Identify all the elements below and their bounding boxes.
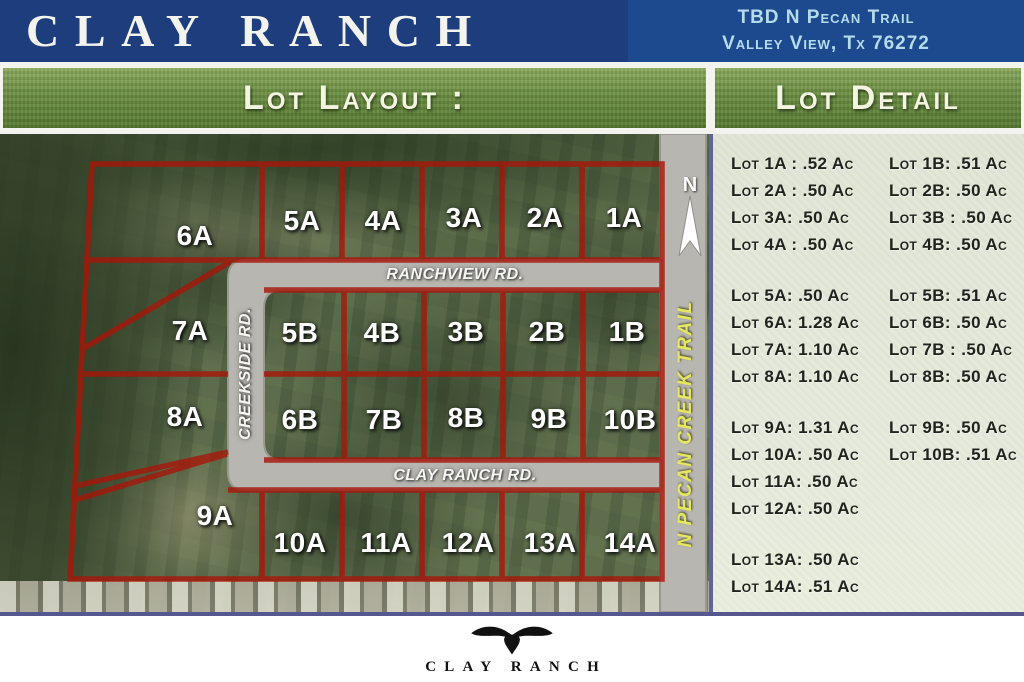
lot-4a-label: 4A: [365, 205, 402, 237]
address-block: TBD N Pecan Trail Valley View, Tx 76272: [628, 0, 1024, 62]
lot-14a-label: 14A: [604, 527, 657, 559]
lot-acreage: Lot 3A: .50 Ac: [731, 208, 889, 228]
lot-acreage: Lot 8A: 1.10 Ac: [731, 367, 889, 387]
detail-row: Lot 7A: 1.10 Ac Lot 7B : .50 Ac: [731, 336, 1024, 363]
lot-acreage: Lot 4A : .50 Ac: [731, 235, 889, 255]
lot-2a-label: 2A: [527, 202, 564, 234]
detail-row: Lot 4A : .50 Ac Lot 4B: .50 Ac: [731, 231, 1024, 258]
lot-acreage: Lot 5B: .51 Ac: [889, 286, 1019, 306]
lot-3a-label: 3A: [446, 202, 483, 234]
detail-row: Lot 10A: .50 Ac Lot 10B: .51 Ac: [731, 441, 1024, 468]
detail-group-1: Lot 1A : .52 Ac Lot 1B: .51 Ac Lot 2A : …: [731, 150, 1024, 258]
lot-5a-label: 5A: [284, 205, 321, 237]
lot-acreage: Lot 8B: .50 Ac: [889, 367, 1019, 387]
detail-row: Lot 9A: 1.31 Ac Lot 9B: .50 Ac: [731, 414, 1024, 441]
footer-logo-text: CLAY RANCH: [417, 659, 607, 676]
lot-detail-panel: Lot 1A : .52 Ac Lot 1B: .51 Ac Lot 2A : …: [709, 134, 1024, 612]
lot-acreage: Lot 10B: .51 Ac: [889, 445, 1019, 465]
lot-acreage: Lot 6A: 1.28 Ac: [731, 313, 889, 333]
lot-10a-label: 10A: [274, 527, 327, 559]
lot-acreage: Lot 3B : .50 Ac: [889, 208, 1019, 228]
footer: CLAY RANCH: [0, 616, 1024, 682]
lot-acreage: Lot 1A : .52 Ac: [731, 154, 889, 174]
detail-row: Lot 14A: .51 Ac: [731, 573, 1024, 600]
lot-acreage: Lot 4B: .50 Ac: [889, 235, 1019, 255]
address-line-2: Valley View, Tx 76272: [722, 31, 930, 57]
header-bar: CLAY RANCH TBD N Pecan Trail Valley View…: [0, 0, 1024, 62]
lot-11a-label: 11A: [360, 527, 411, 559]
lot-12a-label: 12A: [442, 527, 495, 559]
lot-acreage: Lot 14A: .51 Ac: [731, 577, 889, 597]
lot-5b-label: 5B: [282, 317, 319, 349]
pecan-creek-trail-label: N PECAN CREEK TRAIL: [675, 300, 697, 547]
north-indicator: N: [668, 174, 709, 197]
lot-acreage: Lot 9A: 1.31 Ac: [731, 418, 889, 438]
detail-row: Lot 11A: .50 Ac: [731, 468, 1024, 495]
lot-6b-label: 6B: [282, 404, 319, 436]
lot-7a-label: 7A: [172, 315, 209, 347]
lot-10b-label: 10B: [604, 404, 657, 436]
lot-8b-label: 8B: [448, 402, 485, 434]
detail-row: Lot 6A: 1.28 Ac Lot 6B: .50 Ac: [731, 309, 1024, 336]
north-label: N: [683, 174, 697, 196]
lot-acreage: Lot 6B: .50 Ac: [889, 313, 1019, 333]
lot-acreage: Lot 9B: .50 Ac: [889, 418, 1019, 438]
creekside-rd-label: CREEKSIDE RD.: [237, 308, 255, 440]
flyer-page: CLAY RANCH TBD N Pecan Trail Valley View…: [0, 0, 1024, 682]
lot-1a-label: 1A: [606, 202, 643, 234]
lot-layout-heading: Lot Layout :: [243, 79, 466, 118]
lot-4b-label: 4B: [364, 317, 401, 349]
lot-6a-label: 6A: [177, 220, 214, 252]
clay-ranch-rd-label: CLAY RANCH RD.: [393, 467, 536, 485]
detail-row: Lot 8A: 1.10 Ac Lot 8B: .50 Ac: [731, 363, 1024, 390]
detail-row: Lot 13A: .50 Ac: [731, 546, 1024, 573]
ranch-title: CLAY RANCH: [26, 2, 626, 60]
lot-detail-banner: Lot Detail: [712, 65, 1024, 131]
detail-group-2: Lot 5A: .50 Ac Lot 5B: .51 Ac Lot 6A: 1.…: [731, 282, 1024, 390]
detail-row: Lot 2A : .50 Ac Lot 2B: .50 Ac: [731, 177, 1024, 204]
detail-row: Lot 12A: .50 Ac: [731, 495, 1024, 522]
detail-row: Lot 1A : .52 Ac Lot 1B: .51 Ac: [731, 150, 1024, 177]
lot-layout-banner: Lot Layout :: [0, 65, 709, 131]
lot-acreage: Lot 7A: 1.10 Ac: [731, 340, 889, 360]
lot-1b-label: 1B: [609, 316, 646, 348]
detail-row: Lot 5A: .50 Ac Lot 5B: .51 Ac: [731, 282, 1024, 309]
lot-acreage: Lot 13A: .50 Ac: [731, 550, 889, 570]
detail-group-4: Lot 13A: .50 Ac Lot 14A: .51 Ac: [731, 546, 1024, 600]
lot-acreage: Lot 11A: .50 Ac: [731, 472, 889, 492]
lot-9a-label: 9A: [197, 500, 234, 532]
lot-2b-label: 2B: [529, 316, 566, 348]
lot-detail-heading: Lot Detail: [775, 79, 961, 118]
lot-acreage: Lot 1B: .51 Ac: [889, 154, 1019, 174]
lot-acreage: Lot 10A: .50 Ac: [731, 445, 889, 465]
lot-7b-label: 7B: [366, 404, 403, 436]
content-row: N 6A 5A 4A 3A 2A 1A 7A 5B 4B 3B 2B 1B 8A…: [0, 134, 1024, 612]
section-banners: Lot Layout : Lot Detail: [0, 62, 1024, 134]
longhorn-icon: [437, 623, 587, 657]
lot-8a-label: 8A: [167, 401, 204, 433]
address-line-1: TBD N Pecan Trail: [737, 5, 914, 31]
lot-3b-label: 3B: [448, 316, 485, 348]
lot-acreage: Lot 7B : .50 Ac: [889, 340, 1019, 360]
detail-row: Lot 3A: .50 Ac Lot 3B : .50 Ac: [731, 204, 1024, 231]
lot-acreage: Lot 5A: .50 Ac: [731, 286, 889, 306]
lot-layout-map: N 6A 5A 4A 3A 2A 1A 7A 5B 4B 3B 2B 1B 8A…: [0, 134, 709, 612]
lot-9b-label: 9B: [531, 403, 568, 435]
lot-acreage: Lot 12A: .50 Ac: [731, 499, 889, 519]
detail-group-3: Lot 9A: 1.31 Ac Lot 9B: .50 Ac Lot 10A: …: [731, 414, 1024, 522]
lot-acreage: Lot 2B: .50 Ac: [889, 181, 1019, 201]
ranchview-rd-label: RANCHVIEW RD.: [386, 266, 523, 284]
lot-acreage: Lot 2A : .50 Ac: [731, 181, 889, 201]
lot-13a-label: 13A: [524, 527, 577, 559]
